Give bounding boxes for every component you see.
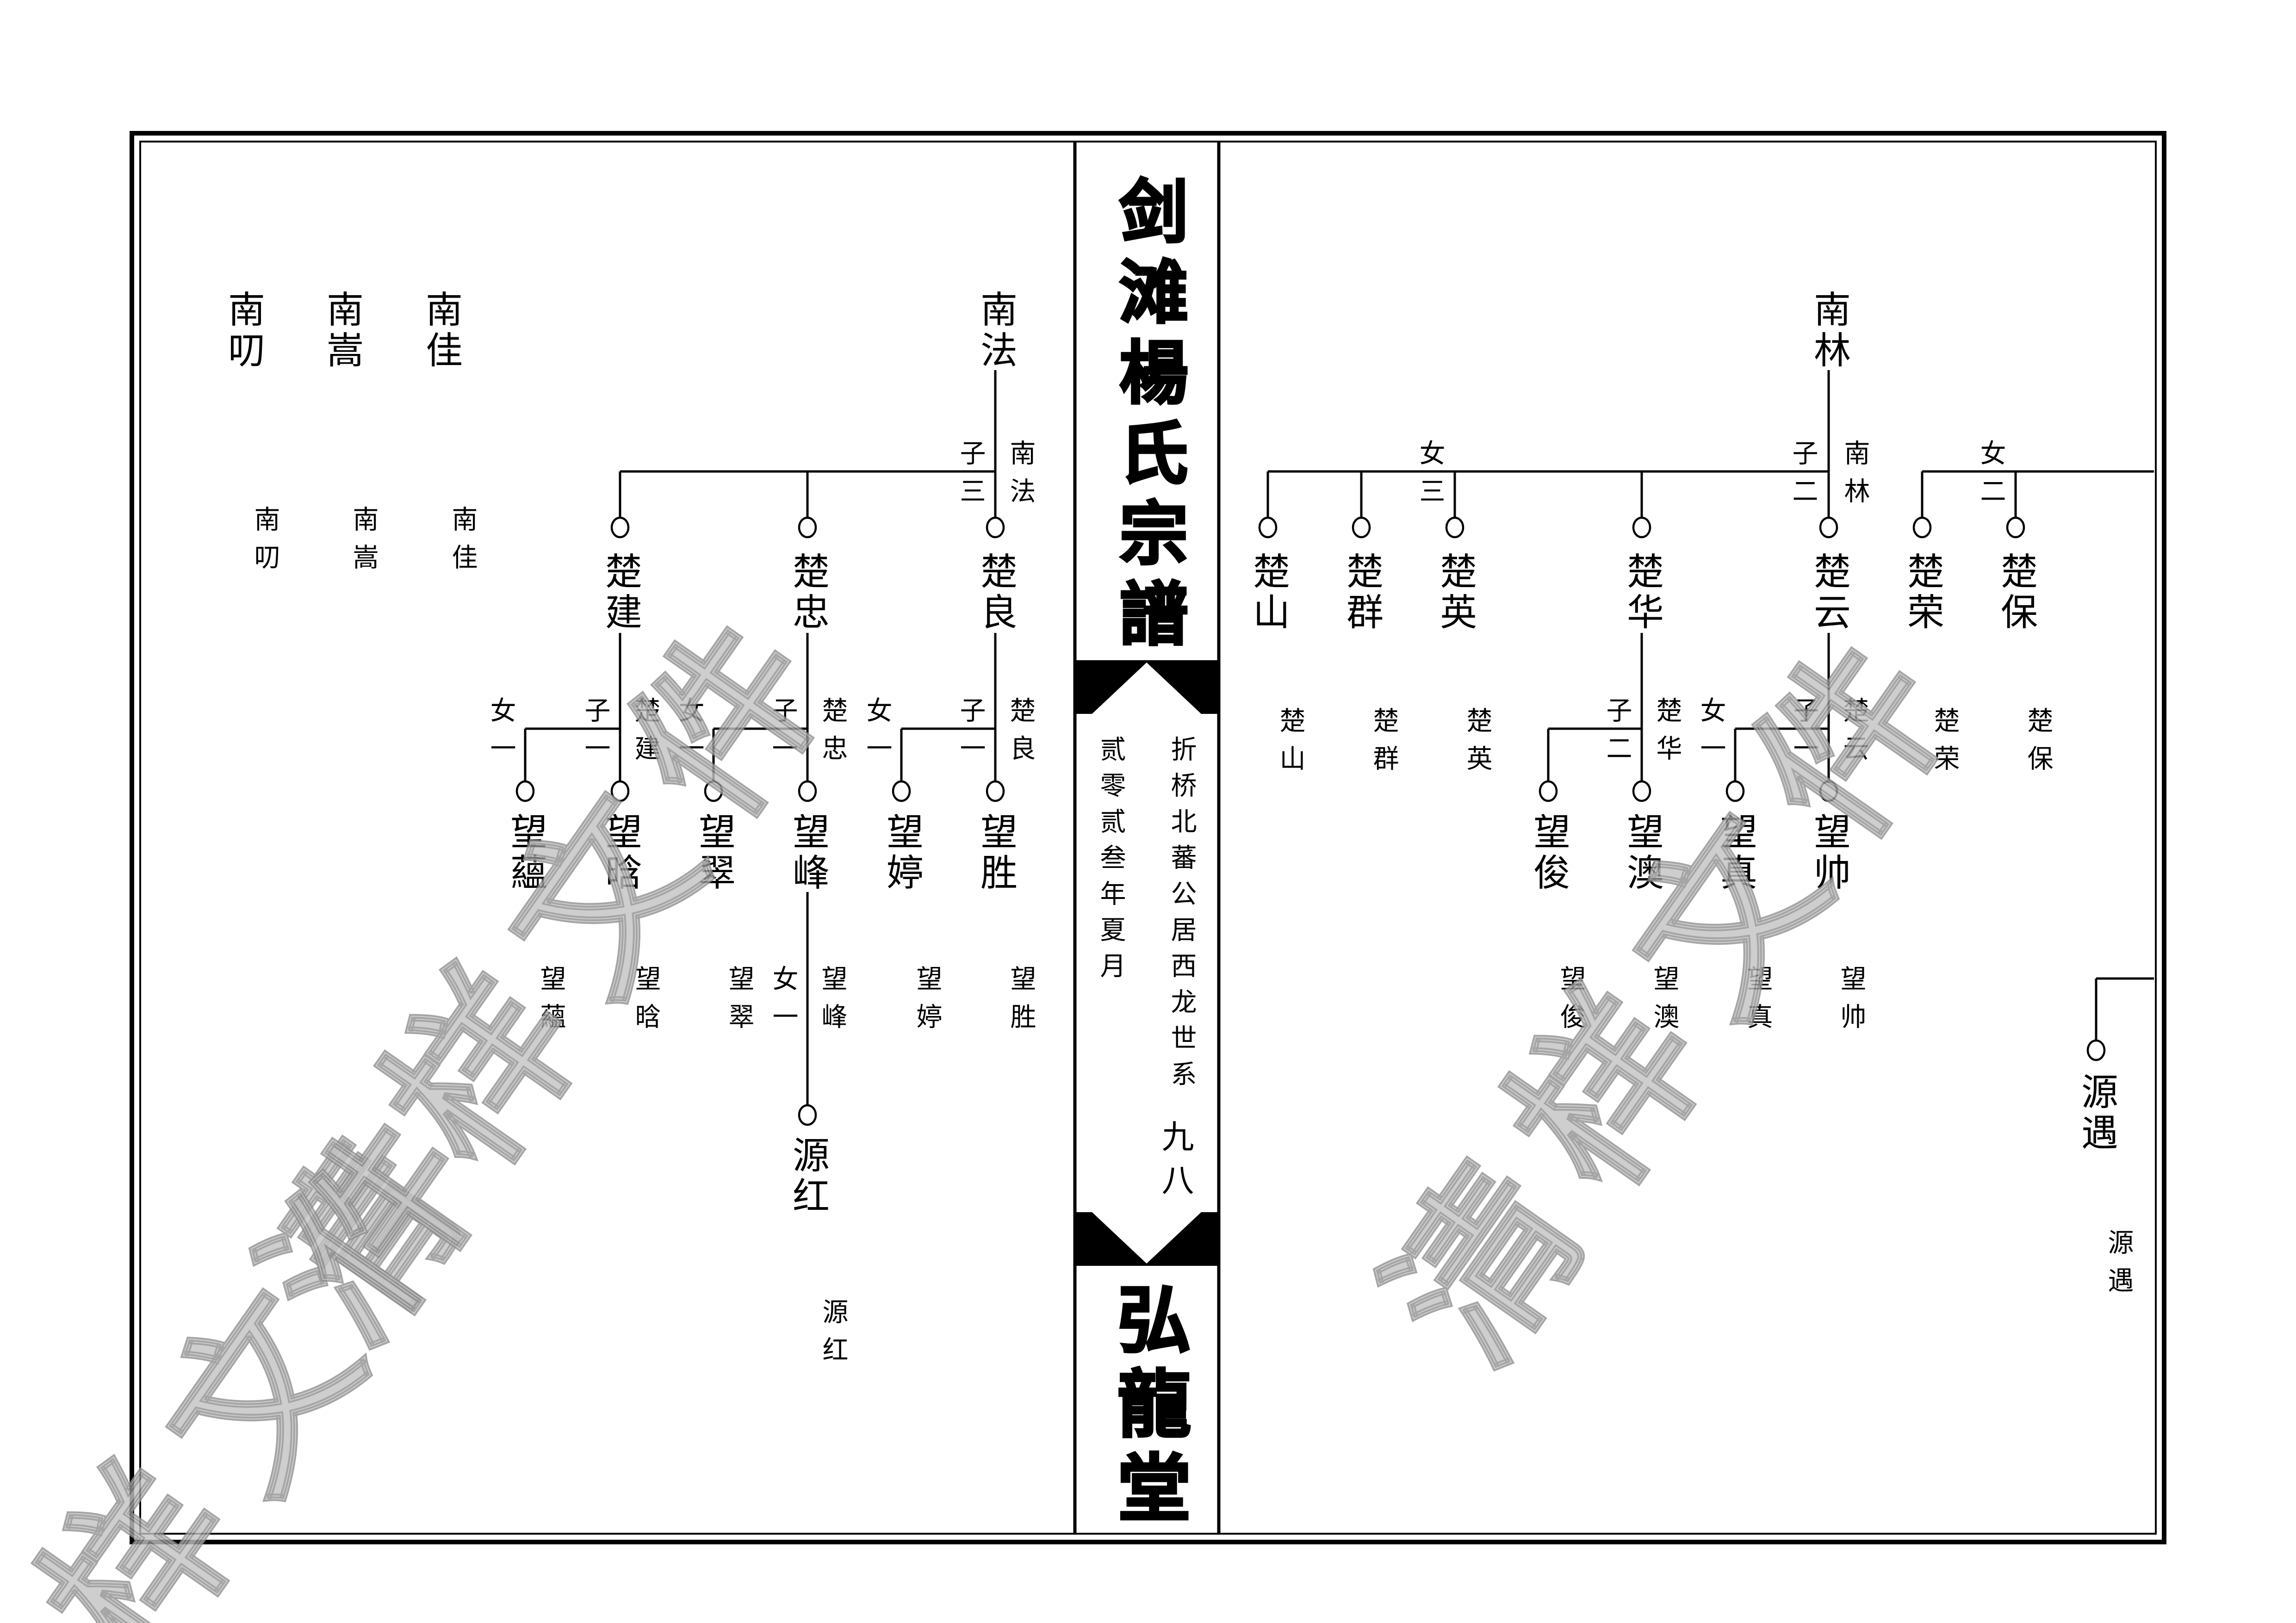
person-ref-label: 楚云 (1841, 697, 1867, 773)
junction-label-sons: 子一 (582, 697, 608, 773)
person-ref-label: 楚忠 (819, 697, 845, 773)
person-name: 楚云 (1810, 552, 1847, 633)
person-ref-label: 望帅 (1838, 965, 1864, 1041)
person-node-circle (1633, 781, 1650, 801)
person-node-circle (1446, 518, 1463, 537)
person-ref-label: 源遇 (2105, 1229, 2131, 1305)
person-name: 楚保 (1997, 552, 2034, 633)
person-name: 南嵩 (323, 290, 360, 372)
junction-label-daughters: 女一 (864, 697, 890, 773)
person-node-circle (2007, 518, 2024, 537)
person-ref-label: 南法 (1007, 440, 1033, 515)
person-ref-label: 南佳 (449, 506, 475, 582)
spine-date-note: 贰零贰叁年夏月 (1098, 736, 1123, 988)
person-name: 望帅 (1810, 812, 1847, 894)
person-ref-label: 楚群 (1371, 707, 1396, 783)
junction-label-sons: 子一 (957, 697, 983, 773)
spine-bottom-ribbon (1076, 1212, 1217, 1266)
person-name: 望胜 (977, 812, 1014, 894)
person-name: 望翠 (695, 812, 732, 894)
person-ref-label: 楚英 (1464, 707, 1490, 783)
person-ref-label: 楚建 (632, 697, 658, 773)
person-name: 望俊 (1530, 812, 1567, 894)
person-node-circle (612, 518, 628, 537)
person-name: 望蘊 (507, 812, 544, 894)
spine-series-note: 折桥北蕃公居西龙世系 (1168, 736, 1194, 1096)
person-name: 源红 (789, 1136, 826, 1217)
person-ref-label: 楚山 (1277, 707, 1303, 783)
person-name: 望真 (1717, 812, 1754, 894)
person-ref-label: 望澳 (1651, 965, 1677, 1041)
junction-label-sons: 子一 (1791, 697, 1817, 773)
junction-label-daughters: 女一 (488, 697, 514, 773)
person-node-circle (799, 1105, 816, 1125)
person-ref-label: 南林 (1842, 440, 1868, 515)
person-name: 望婷 (883, 812, 920, 894)
person-node-circle (517, 781, 534, 801)
junction-label-sons: 子三 (957, 440, 983, 515)
person-ref-label: 楚良 (1007, 697, 1033, 773)
spine-top-ribbon (1076, 660, 1217, 714)
person-ref-label: 望峰 (819, 965, 845, 1041)
person-ref-label: 望俊 (1558, 965, 1583, 1041)
person-node-circle (1820, 518, 1837, 537)
person-ref-label: 源红 (820, 1298, 846, 1374)
junction-label-sons: 子二 (1790, 440, 1816, 515)
junction-label-daughters: 女二 (1978, 440, 2004, 515)
person-node-circle (1260, 518, 1276, 537)
junction-label-sons: 子一 (769, 697, 795, 773)
person-name: 望峰 (789, 812, 826, 894)
person-name: 南叨 (224, 290, 261, 372)
spine-title: 剑滩楊氏宗譜 (1112, 176, 1181, 659)
person-node-circle (799, 518, 816, 537)
junction-label-daughters: 女一 (1698, 697, 1724, 773)
page-number: 九八 (1158, 1120, 1191, 1207)
person-ref-label: 楚荣 (1931, 707, 1957, 783)
junction-label-daughters: 女一 (770, 965, 796, 1041)
person-name: 望晗 (602, 812, 639, 894)
person-name: 南法 (977, 290, 1014, 372)
person-node-circle (987, 518, 1004, 537)
person-name: 楚华 (1623, 552, 1660, 633)
person-name: 南佳 (422, 290, 459, 372)
person-name: 楚忠 (789, 552, 826, 633)
person-name: 望澳 (1623, 812, 1660, 894)
person-name: 南林 (1810, 290, 1847, 372)
person-ref-label: 楚华 (1654, 697, 1680, 773)
person-node-circle (1633, 518, 1650, 537)
person-node-circle (987, 781, 1004, 801)
person-name: 源遇 (2078, 1072, 2115, 1154)
person-name: 楚山 (1249, 552, 1286, 633)
person-node-circle (1820, 781, 1837, 801)
person-node-circle (1727, 781, 1744, 801)
person-node-circles (517, 518, 2104, 1125)
person-name: 楚英 (1436, 552, 1473, 633)
person-node-circle (1540, 781, 1557, 801)
person-node-circle (1914, 518, 1930, 537)
person-ref-label: 望胜 (1008, 965, 1034, 1041)
person-name: 楚建 (602, 552, 639, 633)
person-node-circle (893, 781, 910, 801)
person-node-circle (799, 781, 816, 801)
genealogy-book-page: 剑滩楊氏宗譜 折桥北蕃公居西龙世系 贰零贰叁年夏月 九八 弘龍堂 南叨 南嵩 南… (0, 0, 2296, 1623)
person-node-circle (705, 781, 722, 801)
person-name: 楚良 (977, 552, 1014, 633)
person-node-circle (1353, 518, 1370, 537)
person-ref-label: 南叨 (252, 506, 278, 582)
person-ref-label: 望翠 (726, 965, 752, 1041)
person-ref-label: 楚保 (2025, 707, 2051, 783)
person-node-circle (2088, 1041, 2104, 1060)
person-node-circle (612, 781, 628, 801)
junction-label-daughters: 女三 (1417, 440, 1443, 515)
person-ref-label: 望真 (1744, 965, 1770, 1041)
person-name: 楚荣 (1904, 552, 1941, 633)
person-name: 楚群 (1343, 552, 1380, 633)
junction-label-sons: 子二 (1604, 697, 1630, 773)
person-ref-label: 望蘊 (538, 965, 564, 1041)
person-ref-label: 南嵩 (350, 506, 376, 582)
person-ref-label: 望晗 (633, 965, 658, 1041)
hall-name: 弘龍堂 (1110, 1282, 1183, 1534)
junction-label-daughters: 女一 (676, 697, 702, 773)
person-ref-label: 望婷 (914, 965, 940, 1041)
